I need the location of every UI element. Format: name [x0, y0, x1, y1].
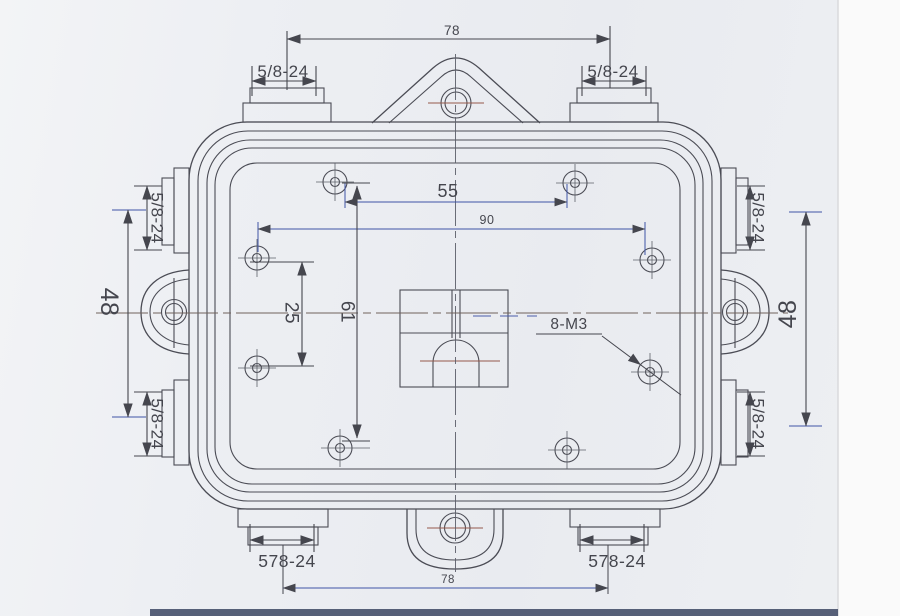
dim-label-hole-span-vertical: 61	[337, 301, 358, 323]
paper-edge-strip	[838, 0, 900, 616]
dim-label-port-pitch-right: 48	[774, 300, 802, 329]
engineering-drawing: 78 55 90 25 61 48 48	[0, 0, 900, 616]
label-port-right-lower: 5/8-24	[749, 398, 768, 449]
label-port-top-left: 5/8-24	[257, 62, 308, 81]
module-outline	[400, 290, 508, 387]
port-bosses	[162, 88, 748, 545]
screw-hole-bottom-left	[321, 429, 370, 467]
screw-hole-top-left	[316, 163, 354, 201]
mounting-tab-top	[372, 58, 540, 123]
label-port-bottom-right: 578-24	[588, 551, 646, 571]
dim-hole-pitch-middle	[258, 222, 645, 255]
callout-leader-arrow	[628, 354, 644, 369]
mounting-tab-bottom	[407, 509, 503, 569]
label-port-left-upper: 5/8-24	[148, 192, 167, 243]
port-boss-top-right	[570, 88, 658, 122]
dim-bottom-span	[283, 545, 608, 594]
dim-port-bottom-left	[250, 524, 314, 552]
dim-label-hole-pitch-middle: 90	[480, 213, 495, 227]
centerlines	[96, 54, 788, 572]
center-module	[400, 290, 508, 387]
screw-hole-mid-right-upper	[633, 241, 671, 279]
callout-label-tapped-holes: 8-M3	[550, 316, 587, 333]
screw-hole-top-right	[556, 164, 594, 202]
dim-label-bottom-span: 78	[441, 574, 455, 586]
mounting-ear-left	[141, 270, 189, 354]
screw-hole-mid-left-lower	[238, 349, 276, 387]
label-port-bottom-left: 578-24	[258, 551, 316, 571]
dim-label-port-pitch-left: 48	[95, 288, 123, 317]
label-port-right-upper: 5/8-24	[749, 192, 768, 243]
dim-port-bottom-right	[580, 524, 644, 552]
scanned-drawing-page: 78 55 90 25 61 48 48	[0, 0, 900, 616]
dim-label-hole-pitch-top: 55	[437, 181, 458, 201]
label-port-top-right: 5/8-24	[587, 62, 638, 81]
screw-hole-mid-left-upper	[238, 239, 276, 277]
dim-label-hole-gap-left: 25	[281, 302, 302, 324]
screw-hole-bottom-right	[548, 431, 586, 469]
scan-edge-shadow	[150, 609, 838, 616]
port-boss-right-upper	[721, 168, 748, 253]
dim-label-top-span: 78	[444, 23, 460, 38]
port-boss-top-left	[243, 88, 331, 122]
port-boss-right-lower	[721, 380, 748, 465]
module-dome	[433, 340, 479, 387]
label-port-left-lower: 5/8-24	[148, 398, 167, 449]
m3-screw-holes	[238, 163, 671, 469]
mounting-ear-right	[721, 270, 769, 354]
